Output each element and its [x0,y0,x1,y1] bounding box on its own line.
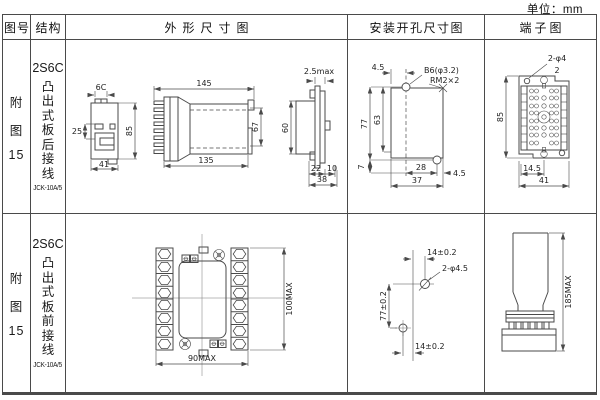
terminal-block [519,76,569,158]
mounting-cell-r1: 4.5 B6(φ3.2) RM2×2 77 63 7 28 [348,40,485,214]
dim-37-label: 37 [412,176,422,185]
terminal-cell-r1: 2-φ4 2 85 14.5 41 [485,40,596,214]
dim-2-phi4-label: 2-φ4 [548,54,566,63]
top-view [91,99,118,164]
outline-drawing-front-wiring: 100MAX 90MAX [66,214,347,392]
dim-38-label: 38 [317,175,327,184]
dim-85-label: 85 [125,126,134,136]
structure-r1: 2S6C 凸出式板后接线 JCK-10A/5 [31,40,66,214]
mounting-dims: 4.5 B6(φ3.2) RM2×2 77 63 7 28 [357,63,466,188]
dim-6c-label: 6C [96,83,107,92]
panel-view-dims: 2.5max 60 22 10 38 [281,67,337,187]
dimension-table: 图号 结构 外形尺寸图 安装开孔尺寸图 端子图 附 图 15 2S6C 凸出式板… [2,14,597,395]
dim-2-phi45-label: 2-φ4.5 [442,264,468,273]
terminal-number-label: 2 [554,66,559,75]
side-profile-dims: 185MAX [549,233,573,351]
dim-60-label: 60 [281,123,290,133]
dim-10-label: 10 [327,164,337,173]
fig-no-char: 15 [9,148,25,162]
col-header-fig-no: 图号 [3,15,31,40]
top-view-dims: 6C 25 85 41 [72,83,137,171]
dim-185max-label: 185MAX [564,275,573,309]
dim-14-bottom-label: 14±0.2 [415,342,445,351]
dim-7-label: 7 [357,164,366,169]
fig-no-char: 图 [10,120,24,139]
outline-cell-r1: 6C 25 85 41 [66,40,348,214]
col-header-mounting: 安装开孔尺寸图 [348,15,485,40]
mounting-hole-top [524,78,529,83]
model-code: JCK-10A/5 [34,362,63,369]
terminal-contacts [530,89,559,145]
terminal-dims: 2-φ4 2 85 14.5 41 [496,54,569,188]
dim-22-label: 22 [311,164,321,173]
dim-67-label: 67 [251,122,260,132]
dim-14-5-label: 14.5 [523,164,541,173]
dim-100max-label: 100MAX [285,282,294,316]
hole-dims: 14±0.2 2-φ4.5 77±0.2 14±0.2 [379,248,468,356]
mounting-hole-bottom [559,150,564,155]
terminal-drawing-rear-wiring: 2-φ4 2 85 14.5 41 [485,40,596,213]
dim-77-label: 77±0.2 [379,291,388,321]
structure-r2: 2S6C 凸出式板前接线 JCK-10A/5 [31,214,66,392]
col-header-outline: 外形尺寸图 [66,15,348,40]
panel-edge-view [296,86,330,168]
fig-no-char: 图 [10,296,24,315]
model-code: JCK-10A/5 [34,185,63,192]
dim-2-5max-label: 2.5max [304,67,334,76]
dim-90max-label: 90MAX [188,354,217,363]
dim-145-label: 145 [196,79,211,88]
dim-135-label: 135 [198,156,213,165]
fig-no-r1: 附 图 15 [3,40,31,214]
dim-4-5-top-label: 4.5 [372,63,385,72]
model-label: 2S6C [32,237,63,251]
mounting-drawing-front-wiring: 14±0.2 2-φ4.5 77±0.2 14±0.2 [348,214,484,392]
catalog-page: 单位：mm 图号 结构 外形尺寸图 安装开孔尺寸图 端子图 附 图 15 2S6… [0,0,600,400]
hole-spec-label: B6(φ3.2) [424,66,459,75]
fig-no-r2: 附 图 15 [3,214,31,392]
mounting-cell-r2: 14±0.2 2-φ4.5 77±0.2 14±0.2 [348,214,485,392]
side-view [154,97,254,161]
col-header-terminal: 端子图 [485,15,596,40]
screw-spec-label: RM2×2 [430,76,459,85]
dim-25-label: 25 [72,127,82,136]
fig-no-char: 附 [10,92,24,111]
col-header-structure: 结构 [31,15,66,40]
dim-63-label: 63 [373,115,382,125]
outline-cell-r2: 100MAX 90MAX [66,214,348,392]
fig-no-char: 15 [9,324,25,338]
dim-14-top-label: 14±0.2 [427,248,457,257]
front-view-dims: 100MAX 90MAX [156,248,294,366]
fig-no-char: 附 [10,268,24,287]
side-view-hidden-lines [190,110,248,148]
dim-77-label: 77 [360,119,369,129]
structure-desc: 凸出式板前接线 [41,256,56,358]
terminal-cell-r2: 185MAX [485,214,596,392]
dim-4-5-right-label: 4.5 [453,169,466,178]
terminal-strip-ticks [521,94,567,142]
outline-drawing-rear-wiring: 6C 25 85 41 [66,40,347,213]
dim-85-label: 85 [496,112,505,122]
mounting-drawing-rear-wiring: 4.5 B6(φ3.2) RM2×2 77 63 7 28 [348,40,484,213]
dim-28-label: 28 [416,163,426,172]
dim-41-label: 41 [99,160,109,169]
dim-41-label: 41 [539,176,549,185]
model-label: 2S6C [32,61,63,75]
terminal-drawing-front-wiring: 185MAX [485,214,596,392]
structure-desc: 凸出式板后接线 [41,80,56,182]
relay-side-profile [502,233,556,351]
